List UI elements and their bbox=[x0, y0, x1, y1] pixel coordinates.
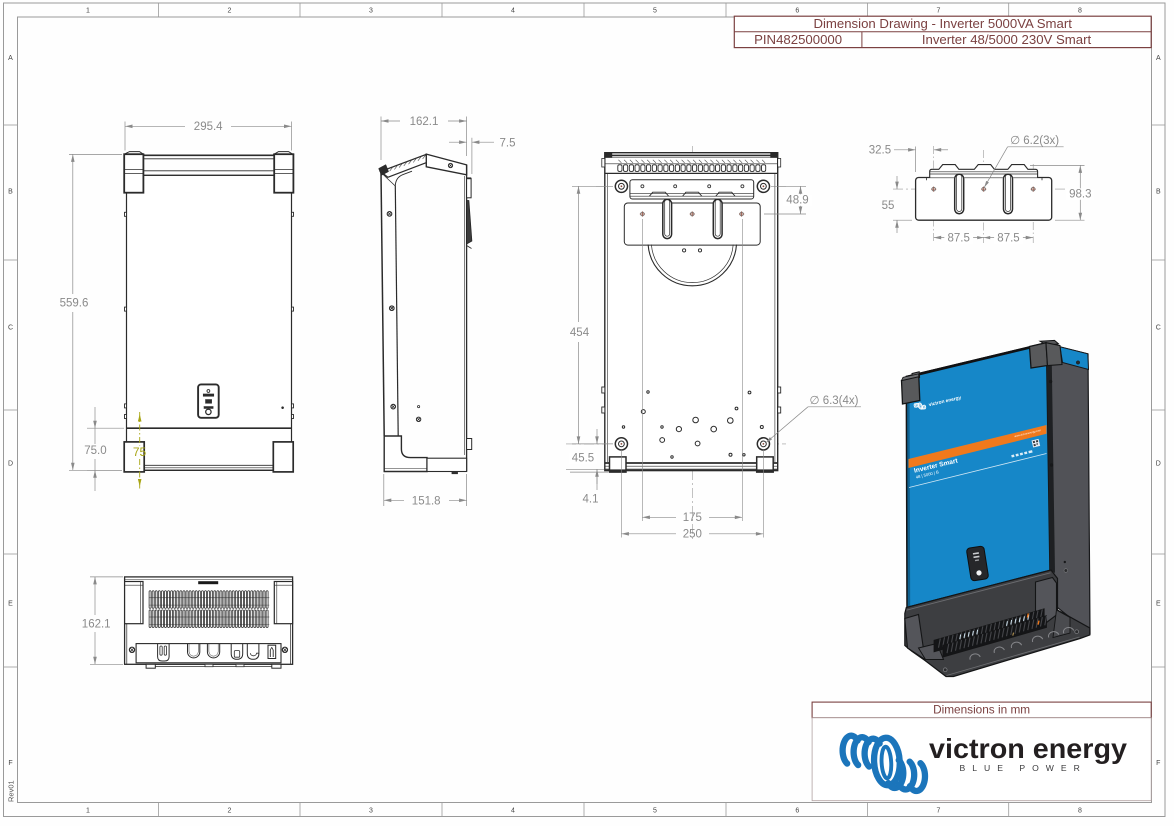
svg-text:7: 7 bbox=[937, 808, 941, 815]
svg-text:∅ 6.2(3x): ∅ 6.2(3x) bbox=[1010, 135, 1059, 147]
svg-text:1: 1 bbox=[86, 8, 90, 15]
svg-text:6: 6 bbox=[795, 808, 799, 815]
svg-text:6: 6 bbox=[795, 8, 799, 15]
svg-text:C: C bbox=[1156, 325, 1161, 332]
svg-text:454: 454 bbox=[570, 327, 590, 339]
svg-text:3: 3 bbox=[369, 8, 373, 15]
svg-text:F: F bbox=[1156, 760, 1160, 767]
svg-text:5: 5 bbox=[653, 808, 657, 815]
svg-text:45.5: 45.5 bbox=[572, 452, 594, 464]
svg-text:75.0: 75.0 bbox=[84, 445, 106, 457]
svg-text:Dimensions in mm: Dimensions in mm bbox=[933, 703, 1030, 717]
svg-text:162.1: 162.1 bbox=[82, 618, 111, 630]
svg-text:32.5: 32.5 bbox=[869, 145, 891, 157]
svg-text:2: 2 bbox=[228, 8, 232, 15]
svg-text:victron energy: victron energy bbox=[929, 733, 1128, 764]
svg-text:2: 2 bbox=[228, 808, 232, 815]
svg-text:151.8: 151.8 bbox=[412, 495, 441, 507]
svg-text:A: A bbox=[1156, 55, 1161, 62]
svg-text:Rev01: Rev01 bbox=[7, 780, 16, 802]
svg-text:8: 8 bbox=[1078, 8, 1082, 15]
svg-text:Inverter 48/5000 230V Smart: Inverter 48/5000 230V Smart bbox=[922, 32, 1092, 47]
svg-text:C: C bbox=[8, 325, 13, 332]
svg-text:F: F bbox=[8, 760, 12, 767]
svg-text:3: 3 bbox=[369, 808, 373, 815]
svg-text:559.6: 559.6 bbox=[60, 298, 89, 310]
svg-text:98.3: 98.3 bbox=[1069, 188, 1091, 200]
svg-text:1: 1 bbox=[86, 808, 90, 815]
svg-text:PIN482500000: PIN482500000 bbox=[754, 32, 842, 47]
svg-text:7.5: 7.5 bbox=[500, 137, 516, 149]
svg-text:A: A bbox=[8, 55, 13, 62]
svg-text:162.1: 162.1 bbox=[410, 116, 439, 128]
svg-text:4: 4 bbox=[511, 8, 515, 15]
svg-text:48.9: 48.9 bbox=[786, 194, 808, 206]
svg-text:8: 8 bbox=[1078, 808, 1082, 815]
svg-text:250: 250 bbox=[683, 529, 702, 541]
svg-text:75: 75 bbox=[133, 445, 147, 459]
svg-text:E: E bbox=[8, 601, 13, 608]
svg-text:D: D bbox=[1156, 461, 1161, 468]
svg-text:87.5: 87.5 bbox=[948, 232, 970, 244]
svg-text:B: B bbox=[8, 189, 13, 196]
svg-text:D: D bbox=[8, 461, 13, 468]
svg-text:BLUE POWER: BLUE POWER bbox=[960, 763, 1087, 773]
svg-text:175: 175 bbox=[683, 512, 702, 524]
svg-text:4: 4 bbox=[511, 808, 515, 815]
svg-text:Dimension Drawing - Inverter 5: Dimension Drawing - Inverter 5000VA Smar… bbox=[813, 16, 1072, 31]
svg-text:55: 55 bbox=[882, 200, 895, 212]
svg-text:∅ 6.3(4x): ∅ 6.3(4x) bbox=[809, 395, 858, 407]
svg-text:295.4: 295.4 bbox=[194, 121, 223, 133]
svg-text:B: B bbox=[1156, 189, 1161, 196]
svg-text:4.1: 4.1 bbox=[583, 493, 599, 505]
svg-text:7: 7 bbox=[937, 8, 941, 15]
svg-text:E: E bbox=[1156, 601, 1161, 608]
svg-text:87.5: 87.5 bbox=[997, 232, 1019, 244]
svg-text:5: 5 bbox=[653, 8, 657, 15]
